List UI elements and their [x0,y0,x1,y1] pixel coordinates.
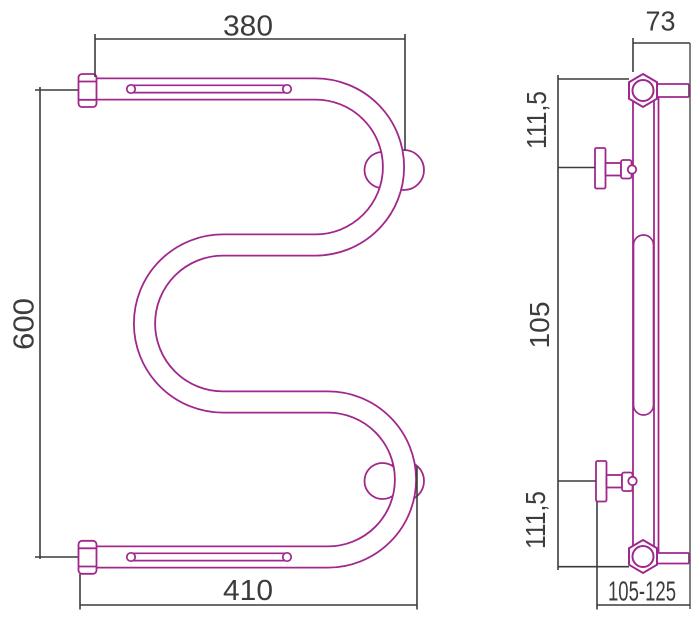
dim-73-label: 73 [646,6,676,37]
slot-end-circle [283,85,291,93]
slot-end-circle [283,553,291,561]
wall-bracket-top [595,148,636,189]
technical-drawing-canvas: 380 600 410 [0,0,700,623]
dim-73 [633,38,690,72]
bracket-stem [607,475,623,488]
dim-380-label: 380 [223,11,273,43]
dim-600 [35,87,78,559]
slot-end-circle [127,553,135,561]
dim-111-5-bottom-label: 111,5 [520,491,551,549]
front-bottom-nut [79,541,97,574]
side-view: 73 111,5 105 111,5 105-125 [520,6,690,610]
nut-body [79,74,97,107]
dim-111-5-top-label: 111,5 [521,91,552,149]
hex-circle [633,546,654,567]
bracket-ball [628,477,636,485]
bracket-flange [596,461,607,502]
side-curve-projection [634,235,654,415]
towel-rail-drawing: 380 600 410 [0,0,700,623]
dim-600-label: 600 [9,298,41,350]
bracket-ball [628,165,636,173]
front-top-nut [79,74,97,107]
dim-105-125-label: 105-125 [608,576,676,607]
dim-vertical-chain [558,75,629,570]
side-top-hex-nut [629,74,657,107]
wall-bracket-bottom [596,461,637,502]
slot-end-circle [127,85,135,93]
front-view: 380 600 410 [9,11,425,610]
hex-circle [633,80,654,101]
nut-body [79,541,97,574]
s-tube-inner [95,89,405,557]
dim-410-label: 410 [223,575,273,607]
bracket-stem [606,163,622,176]
bracket-flange [595,148,606,189]
dim-105-label: 105 [524,302,555,349]
side-bottom-hex-nut [629,540,657,573]
